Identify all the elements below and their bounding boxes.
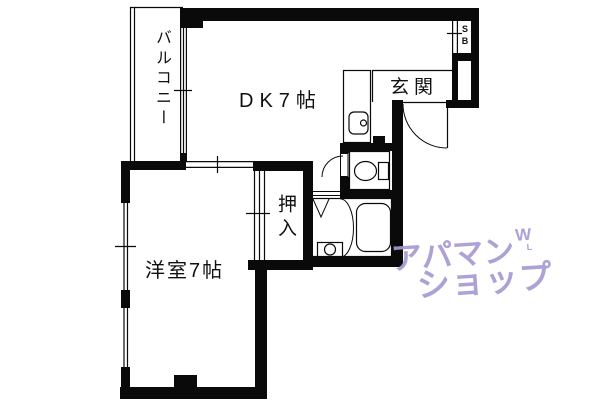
shoe-box-label: SB: [460, 24, 470, 48]
toilet-door-leaf: [341, 154, 349, 177]
toilet-door-swing-arc: [322, 156, 343, 177]
bath-folding-door: [313, 199, 329, 217]
toilet: [355, 162, 377, 181]
plan-lines-layer: [0, 0, 600, 400]
washbasin: [318, 243, 343, 257]
toilet-tank: [379, 163, 389, 180]
kitchen-sink: [349, 112, 368, 134]
front-door-swing-arc: [403, 104, 447, 148]
entrance-label: 玄関: [390, 72, 438, 99]
balcony-label: バルコニー: [149, 29, 173, 129]
dining-kitchen-label: DK7帖: [239, 84, 322, 113]
bathtub: [357, 204, 391, 252]
western-room-label: 洋室7帖: [145, 254, 224, 283]
closet-label: 押入: [272, 194, 299, 242]
floor-plan: アパマン W L ショップ: [0, 0, 600, 400]
